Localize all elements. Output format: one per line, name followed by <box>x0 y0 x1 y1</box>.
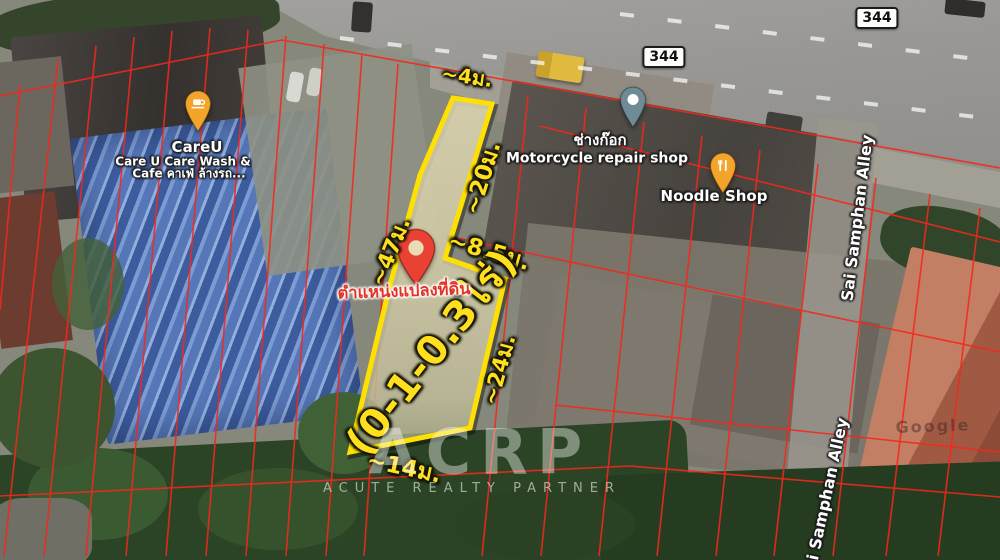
acrp-watermark-tagline: ACUTE REALTY PARTNER <box>323 482 621 496</box>
careu-coffee-pin-icon[interactable] <box>184 90 212 132</box>
motorcycle-shop-name-thai[interactable]: ช่างก๊อก <box>573 133 626 149</box>
motorcycle-shop-name[interactable]: Motorcycle repair shop <box>506 152 688 167</box>
tree-blob-4 <box>455 488 635 560</box>
vehicle-dark-top <box>351 1 373 32</box>
satellite-map-listing-image: 344 344 CareU Care U Care Wash & Cafe คา… <box>0 0 1000 560</box>
route-badge-344-left[interactable]: 344 <box>642 46 685 68</box>
careu-poi-subtitle-2[interactable]: Cafe คาเฟ่ ล้างรถ... <box>132 168 245 181</box>
acrp-watermark-logo: ACRP <box>369 419 592 484</box>
map-credit-watermark: Google <box>895 417 970 436</box>
plot-location-label: ตำแหน่งแปลงที่ดิน <box>337 280 471 302</box>
route-badge-344-right[interactable]: 344 <box>855 7 898 29</box>
driveway-bottom-left <box>0 498 92 560</box>
noodle-shop-name[interactable]: Noodle Shop <box>661 189 768 205</box>
green-patch-left-upper <box>52 238 124 330</box>
motorcycle-shop-pin-icon[interactable] <box>619 86 647 128</box>
careu-poi-name[interactable]: CareU <box>172 140 223 156</box>
vegetation-bottom-right <box>598 461 1000 560</box>
